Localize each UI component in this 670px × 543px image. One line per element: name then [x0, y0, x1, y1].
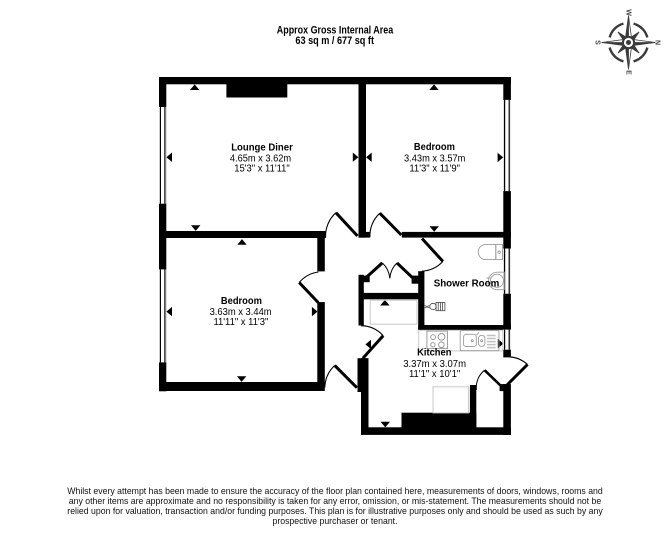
svg-text:N: N — [654, 40, 661, 45]
svg-text:Bedroom: Bedroom — [221, 296, 262, 307]
svg-text:S: S — [594, 40, 601, 45]
svg-text:Whilst every attempt has been: Whilst every attempt has been made to en… — [67, 486, 603, 496]
svg-text:relied upon for valuation, tra: relied upon for valuation, transaction a… — [67, 506, 603, 516]
svg-text:E: E — [625, 70, 632, 75]
svg-text:Shower Room: Shower Room — [434, 278, 500, 289]
svg-text:Lounge Diner: Lounge Diner — [231, 142, 293, 153]
svg-text:11'3" x 11'9": 11'3" x 11'9" — [409, 163, 460, 174]
svg-text:any other items are approximat: any other items are approximate and no r… — [69, 496, 602, 506]
svg-text:63 sq m / 677 sq ft: 63 sq m / 677 sq ft — [295, 35, 374, 47]
svg-text:prospective purchaser or tenan: prospective purchaser or tenant. — [272, 516, 397, 526]
svg-text:11'11" x 11'3": 11'11" x 11'3" — [213, 317, 268, 328]
svg-text:15'3" x 11'11": 15'3" x 11'11" — [234, 164, 290, 175]
svg-text:Kitchen: Kitchen — [417, 347, 451, 358]
svg-text:W: W — [625, 9, 632, 16]
svg-text:Bedroom: Bedroom — [414, 142, 455, 153]
svg-text:11'1" x 10'1": 11'1" x 10'1" — [409, 369, 461, 380]
